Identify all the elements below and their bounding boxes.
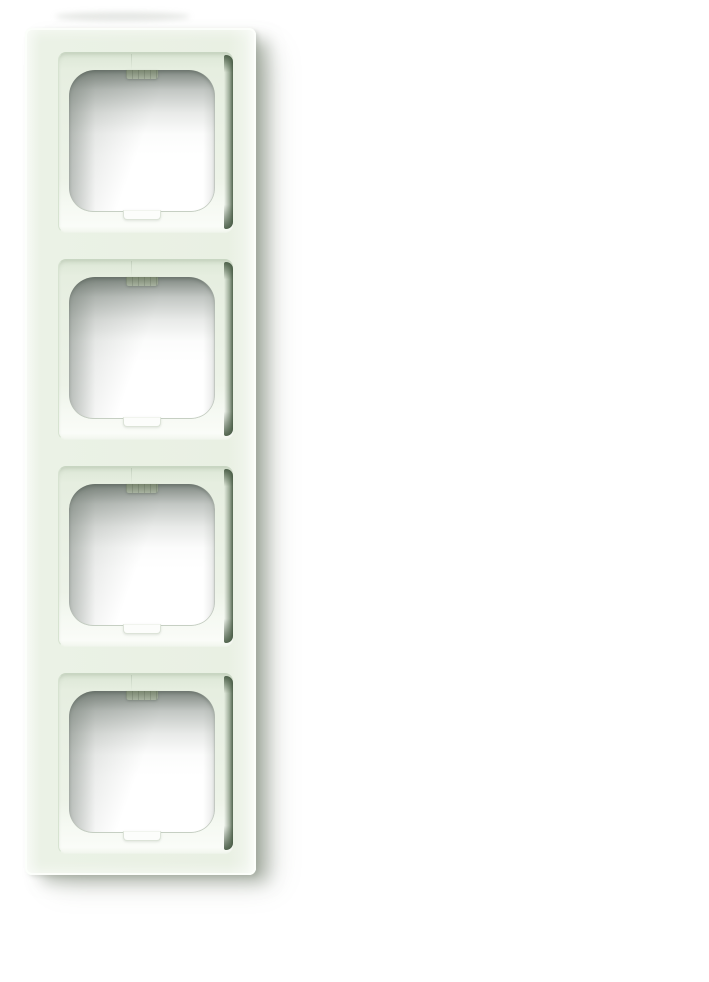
mould-seam bbox=[131, 54, 132, 70]
module-recess bbox=[58, 673, 233, 854]
module-opening bbox=[69, 691, 215, 833]
recess-right-shadow-channel bbox=[224, 262, 233, 436]
top-clip-tab bbox=[126, 691, 158, 700]
bottom-clip-notch bbox=[123, 210, 161, 220]
mould-seam bbox=[131, 261, 132, 277]
mould-seam bbox=[131, 468, 132, 484]
top-clip-tab bbox=[126, 484, 158, 493]
ambient-shadow bbox=[55, 12, 190, 21]
recess-right-shadow-channel bbox=[224, 469, 233, 643]
mould-seam bbox=[131, 675, 132, 691]
top-clip-tab bbox=[126, 277, 158, 286]
module-recess bbox=[58, 52, 233, 233]
module-opening bbox=[69, 484, 215, 626]
product-photo bbox=[0, 0, 709, 982]
recess-right-shadow-channel bbox=[224, 55, 233, 229]
module-recess bbox=[58, 466, 233, 647]
bottom-clip-notch bbox=[123, 831, 161, 841]
bottom-clip-notch bbox=[123, 417, 161, 427]
module-recess bbox=[58, 259, 233, 440]
frame bbox=[25, 28, 256, 875]
bottom-clip-notch bbox=[123, 624, 161, 634]
recess-right-shadow-channel bbox=[224, 676, 233, 850]
module-opening bbox=[69, 277, 215, 419]
top-clip-tab bbox=[126, 70, 158, 79]
module-opening bbox=[69, 70, 215, 212]
